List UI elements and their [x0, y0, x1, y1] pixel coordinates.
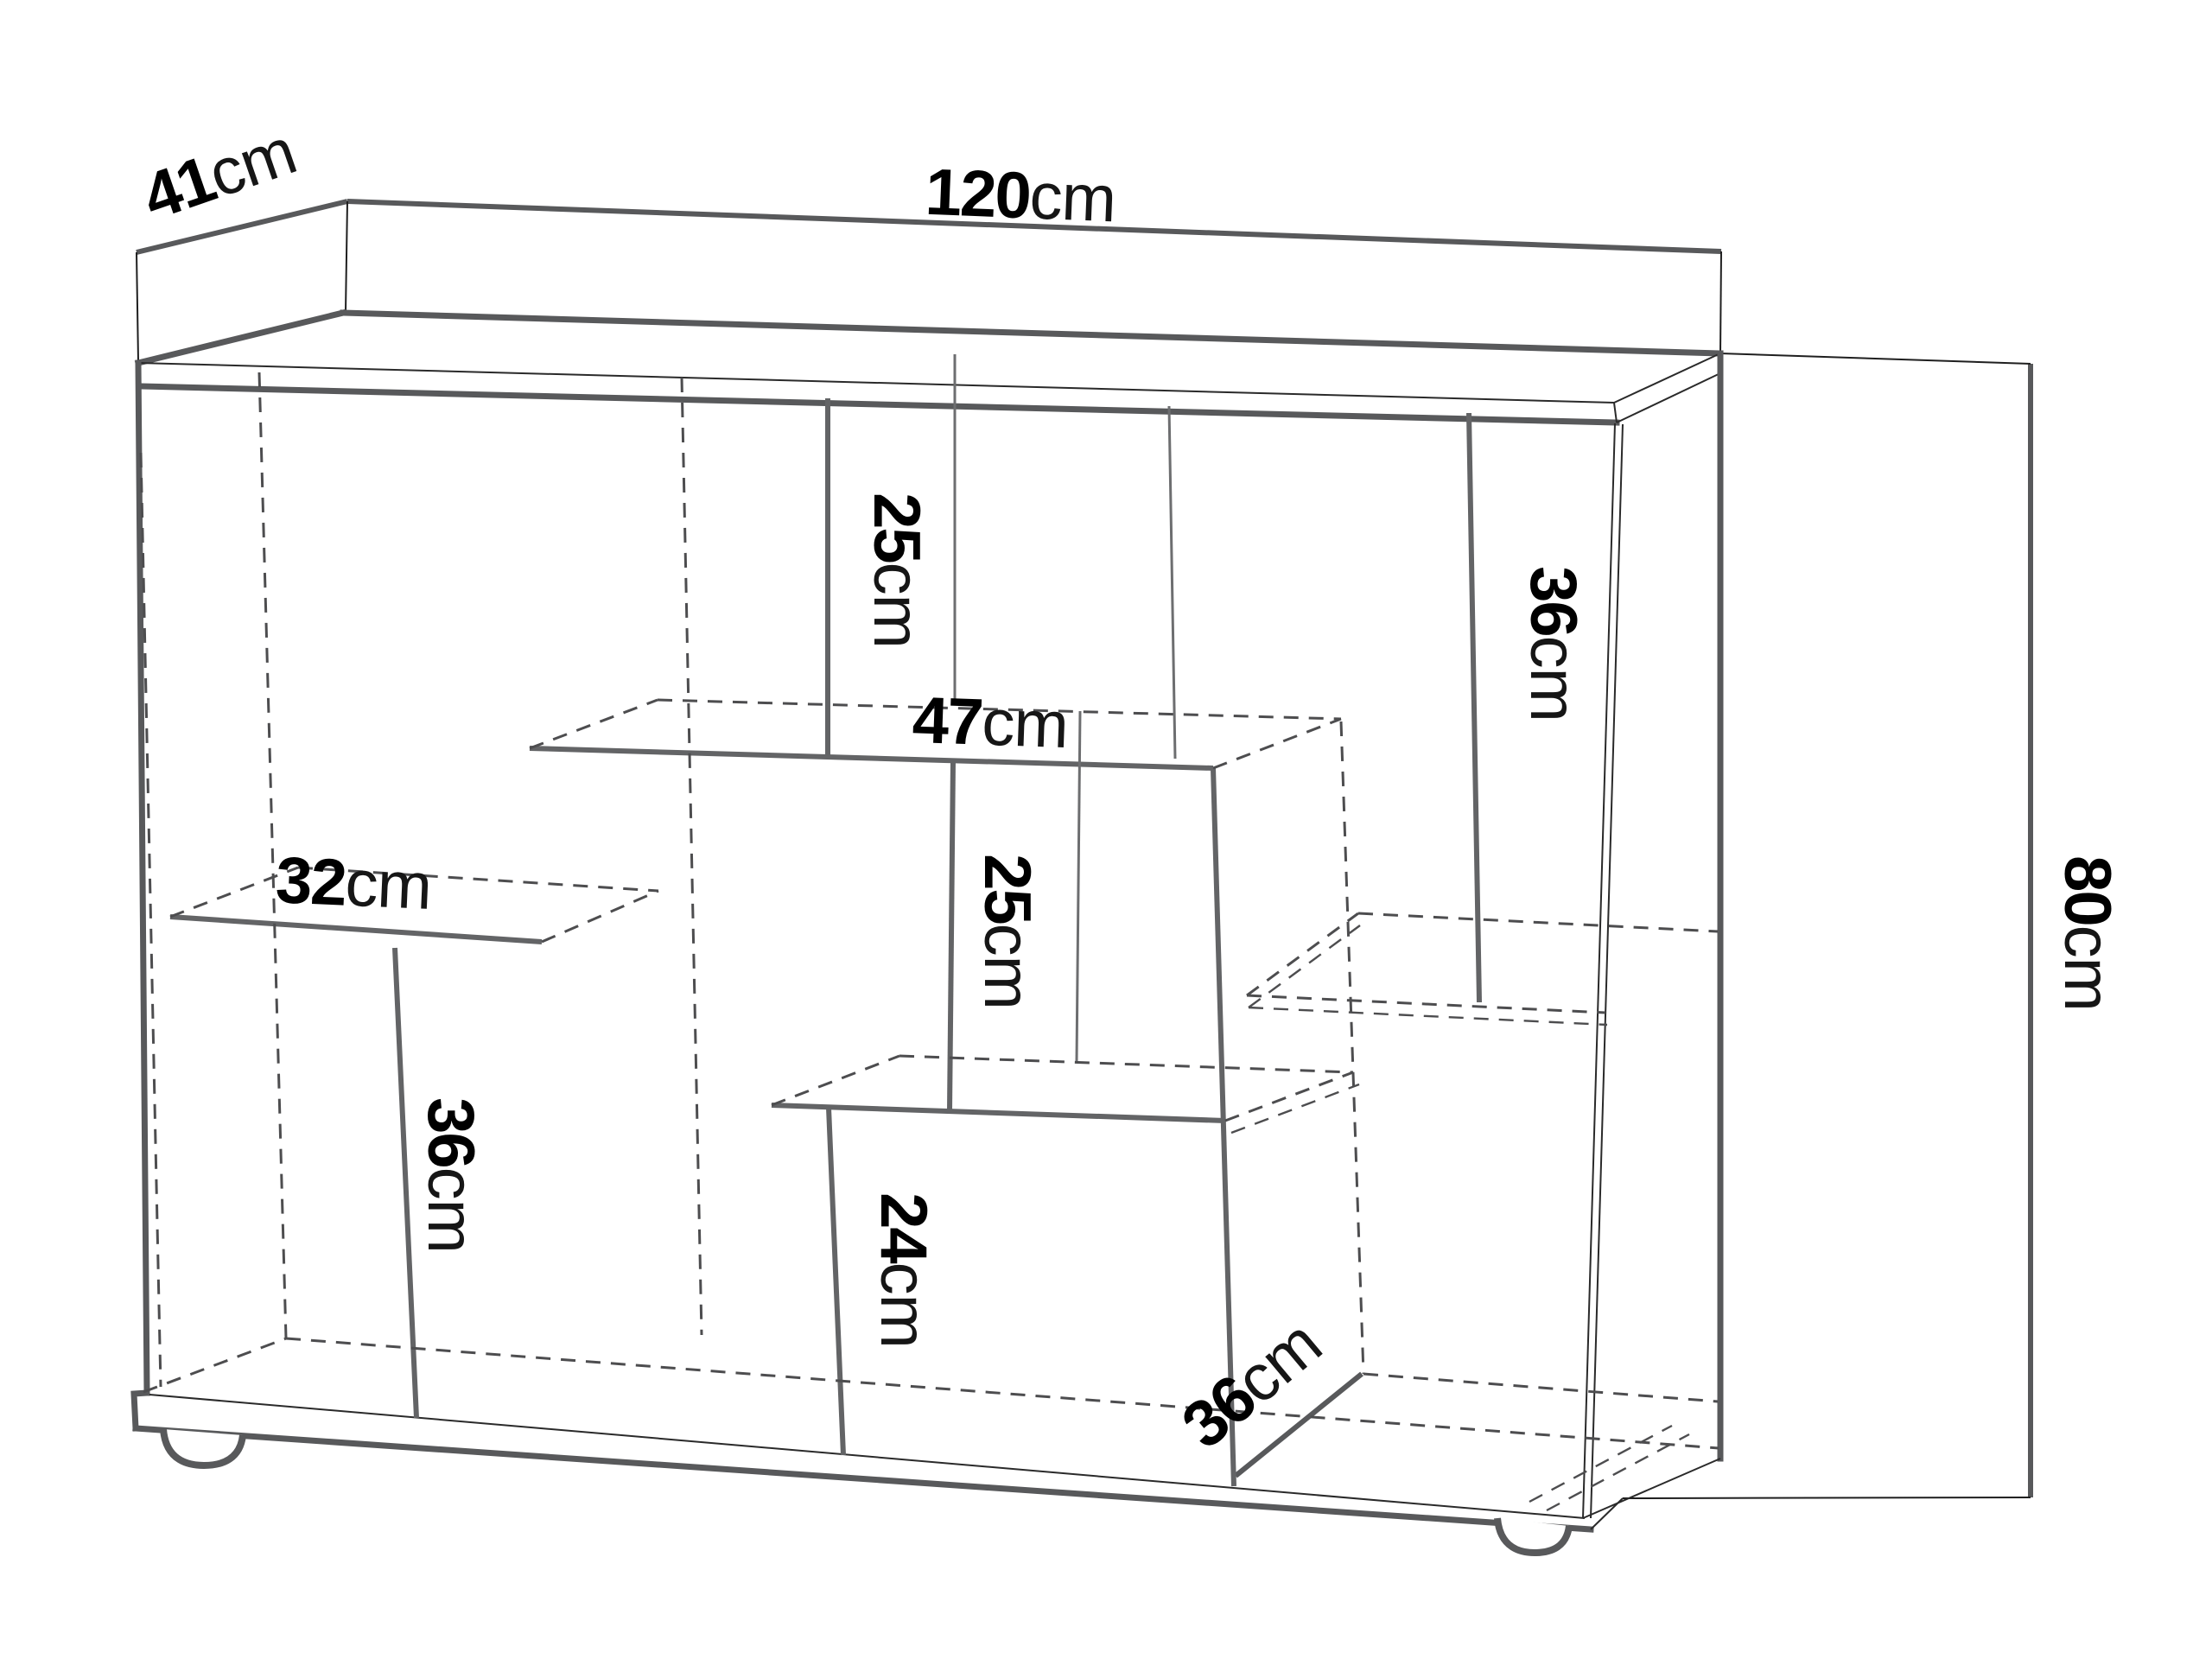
top-panel-right-bottom-edge: [1617, 372, 1722, 423]
shelf-center-lower: [772, 1105, 1225, 1121]
interior-back-edge: [1169, 406, 1175, 759]
floor-back-edge: [286, 1338, 1719, 1448]
shelf-center-lower-depth-edge: [1225, 1072, 1353, 1121]
shelf-right-depth-edge: [1247, 913, 1358, 995]
height-label: 80cm: [2050, 855, 2124, 1011]
top-left-edge: [138, 313, 343, 363]
plinth-left-step: [134, 1393, 147, 1428]
width-label: 120cm: [924, 156, 1116, 237]
bottom-right-depth-label: 36cm: [1168, 1306, 1334, 1463]
extension-line: [137, 252, 138, 361]
shelf-center-upper-depth-edge: [530, 700, 658, 748]
divider-top-right: [1469, 413, 1479, 1002]
dimension-diagram-page: 41cm 120cm 80cm 25cm 47cm 25cm 24cm 32cm…: [0, 0, 2212, 1659]
bottom-center-compartment-label: 24cm: [867, 1192, 940, 1348]
shelf-center-lower-depth-edge-2: [1231, 1084, 1359, 1133]
shelf-center-upper-depth-edge: [1213, 719, 1341, 768]
middle-center-compartment-label: 25cm: [970, 854, 1044, 1009]
shelf-center-lower-depth-edge: [772, 1056, 899, 1105]
extension-line: [1720, 251, 1721, 353]
extension-line: [1720, 353, 2031, 364]
shelf-center-lower-back-edge: [899, 1056, 1353, 1072]
shelf-right-back-edge: [1358, 913, 1718, 931]
plinth-bottom-edge: [136, 1428, 1591, 1529]
floor-left-depth-edge: [143, 1338, 286, 1392]
plinth-right-end-edge: [1591, 1498, 1623, 1529]
extension-line: [1623, 1497, 2031, 1498]
bottom-right-back-edge: [1363, 1374, 1718, 1402]
bottom-front-edge: [149, 1395, 1585, 1518]
divider-bottom-center: [829, 1108, 843, 1455]
left-foot: [163, 1429, 243, 1465]
top-right-edge: [1614, 353, 1720, 403]
top-right-compartment-label: 36cm: [1516, 566, 1590, 721]
shelf-left: [170, 917, 542, 942]
left-shelf-label: 32cm: [274, 843, 432, 924]
shelf-center-upper: [530, 748, 1213, 768]
shelf-right-depth-edge-2: [1249, 925, 1360, 1007]
divider-right-back-edge: [1341, 721, 1363, 1374]
bottom-right-depth-edge-2: [1529, 1426, 1672, 1502]
sideboard-dimension-drawing: 41cm 120cm 80cm 25cm 47cm 25cm 24cm 32cm…: [0, 0, 2212, 1659]
top-front-edge: [138, 363, 1614, 403]
shelf-left-depth-edge: [542, 891, 658, 942]
top-center-compartment-label: 25cm: [860, 493, 933, 648]
center-shelf-label: 47cm: [912, 683, 1070, 762]
right-side-bottom-edge: [1583, 1459, 1720, 1518]
top-back-edge: [343, 313, 1720, 353]
right-side-front-corner-edge: [1591, 424, 1623, 1518]
right-foot: [1497, 1518, 1569, 1553]
shelf-back-riser-edge: [682, 378, 702, 1335]
top-panel-front-bottom-edge: [141, 386, 1617, 423]
extension-line: [346, 201, 347, 312]
bottom-left-compartment-label: 36cm: [414, 1097, 487, 1253]
